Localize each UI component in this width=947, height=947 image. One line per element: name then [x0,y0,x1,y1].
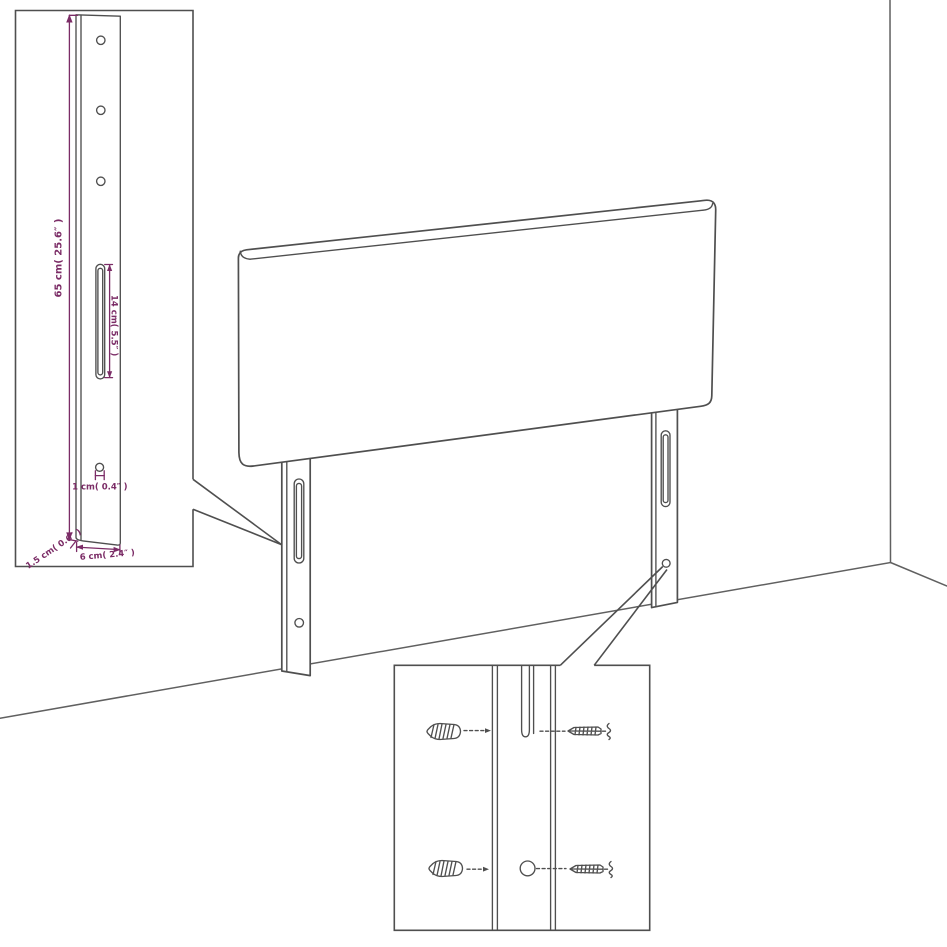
label-leg-width: 6 cm( 2.4″ ) [79,548,135,563]
bracket-slot-outer [96,264,105,379]
dashed-arrow-bottom [483,867,489,872]
bracket-hole-middle [97,106,105,114]
bracket-small-hole [96,463,104,471]
label-leg-height: 65 cm( 25.6″ ) [54,219,65,298]
diagram-canvas: 65 cm( 25.6″ ) 14 cm( 5.5″ ) 1 cm( 0.4″ … [0,0,947,947]
callout-pointer-line-upper [193,479,282,544]
strip-hole [520,861,535,876]
bracket-hole-top [97,36,105,44]
label-leg-thickness: 1.5 cm( 0.6″ ) [24,527,83,571]
callout-pointer-line-lower [193,509,282,544]
screw-head-squiggle [609,862,612,878]
screw-icon-bottom [570,862,613,878]
bracket-slot-inner [98,268,103,375]
headboard-panel [238,200,715,466]
bracket-hole-lower [97,177,105,185]
headboard [238,200,715,466]
headboard-assembly-diagram: 65 cm( 25.6″ ) 14 cm( 5.5″ ) 1 cm( 0.4″ … [0,0,947,947]
screw-icon-top [568,724,611,740]
dashed-arrow-top [485,728,491,733]
hardware-pointer-line-right [594,570,667,666]
screw-threads [572,865,603,873]
leg-cutouts [294,431,670,627]
floor-line-left [0,563,891,719]
wall-plug-threads [431,724,454,739]
callout-mounting-hardware [394,567,667,931]
wall-plug-icon-bottom [429,861,463,877]
strip-slot [522,665,530,737]
hardware-pointer-line-left [560,567,663,666]
wall-plug-threads [433,861,456,876]
floor-line-right [891,563,947,587]
screw-threads [570,727,601,735]
label-slot-length: 14 cm( 5.5″ ) [109,295,119,356]
label-hole-diameter: 1 cm( 0.4″ ) [72,483,127,493]
wall-corner-line [890,0,891,563]
screw-head-squiggle [607,724,610,740]
wall-plug-icon-top [427,724,461,740]
dim-arrow-14cm-top [107,264,112,271]
